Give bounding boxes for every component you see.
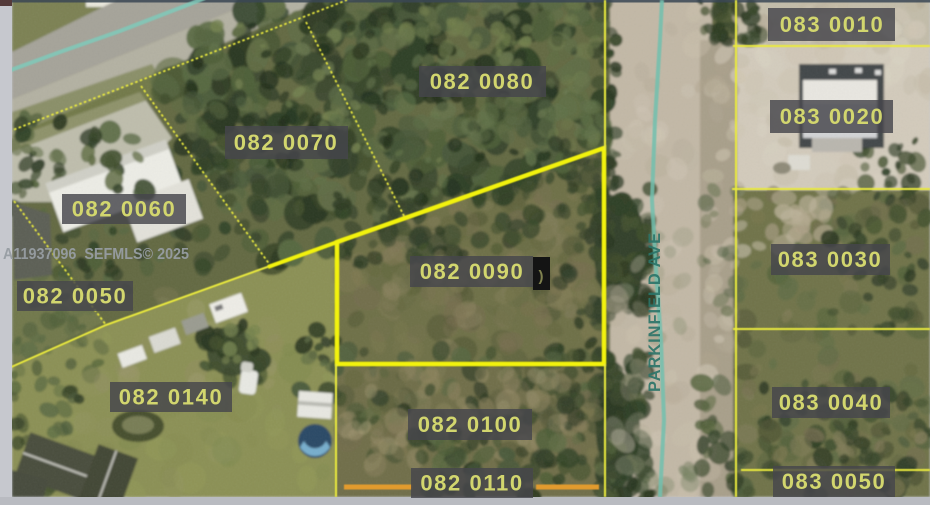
svg-text:083 0050: 083 0050 (782, 469, 887, 494)
svg-text:082 0090: 082 0090 (420, 259, 525, 284)
svg-text:083 0020: 083 0020 (780, 104, 885, 129)
svg-text:083 0030: 083 0030 (778, 247, 883, 272)
svg-text:083 0040: 083 0040 (779, 390, 884, 415)
svg-text:082 0060: 082 0060 (72, 197, 177, 222)
svg-text:082 0050: 082 0050 (23, 284, 128, 309)
svg-text:): ) (539, 268, 544, 285)
svg-text:082 0110: 082 0110 (420, 471, 523, 496)
svg-text:082 0100: 082 0100 (418, 412, 523, 437)
svg-text:A11937096 SEFMLS© 2025: A11937096 SEFMLS© 2025 (3, 246, 189, 263)
svg-text:083 0010: 083 0010 (780, 12, 885, 37)
svg-text:082 0140: 082 0140 (119, 385, 224, 410)
svg-text:082 0070: 082 0070 (234, 130, 339, 155)
svg-text:082 0080: 082 0080 (430, 69, 535, 94)
svg-text:PARKINFIELD AVE: PARKINFIELD AVE (645, 232, 664, 392)
